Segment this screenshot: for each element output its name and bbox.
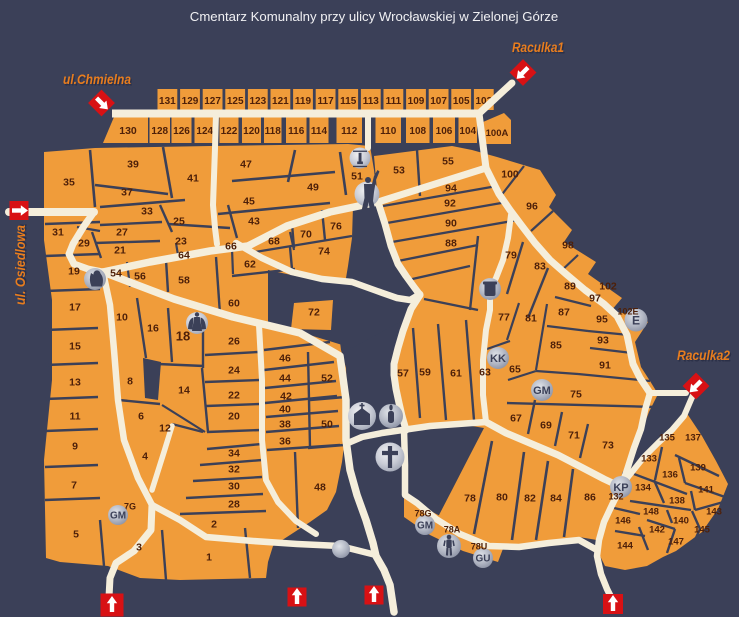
- svg-text:GM: GM: [417, 521, 433, 532]
- svg-text:38: 38: [279, 419, 291, 431]
- svg-text:106: 106: [436, 126, 453, 137]
- svg-text:1: 1: [206, 552, 212, 564]
- svg-text:130: 130: [119, 125, 137, 137]
- svg-text:136: 136: [662, 470, 678, 481]
- svg-text:58: 58: [178, 275, 190, 287]
- svg-text:GM: GM: [110, 511, 126, 522]
- svg-text:17: 17: [69, 302, 81, 314]
- svg-text:19: 19: [68, 266, 80, 278]
- svg-text:45: 45: [243, 196, 255, 208]
- svg-text:76: 76: [330, 221, 342, 233]
- svg-text:70: 70: [300, 229, 312, 241]
- svg-text:18: 18: [176, 329, 190, 344]
- svg-text:107: 107: [430, 96, 447, 107]
- svg-text:23: 23: [175, 236, 187, 248]
- svg-text:140: 140: [673, 516, 689, 527]
- svg-text:27: 27: [116, 227, 128, 239]
- svg-text:47: 47: [240, 159, 252, 171]
- svg-text:25: 25: [173, 216, 185, 228]
- svg-text:72: 72: [308, 307, 320, 319]
- svg-text:30: 30: [228, 481, 240, 493]
- svg-text:127: 127: [204, 96, 221, 107]
- svg-text:129: 129: [182, 96, 199, 107]
- svg-text:132: 132: [608, 492, 623, 502]
- svg-text:75: 75: [570, 389, 582, 401]
- svg-text:12: 12: [159, 423, 171, 435]
- svg-text:39: 39: [127, 159, 139, 171]
- svg-text:80: 80: [496, 492, 508, 504]
- svg-text:22: 22: [228, 390, 240, 402]
- svg-text:82: 82: [524, 493, 536, 505]
- svg-text:46: 46: [279, 353, 291, 365]
- svg-text:93: 93: [597, 335, 609, 347]
- svg-text:28: 28: [228, 499, 240, 511]
- svg-text:128: 128: [151, 126, 168, 137]
- svg-text:16: 16: [147, 323, 159, 335]
- svg-text:41: 41: [187, 173, 199, 185]
- svg-text:90: 90: [445, 218, 457, 230]
- svg-text:71: 71: [568, 430, 580, 442]
- svg-text:123: 123: [249, 96, 266, 107]
- svg-text:32: 32: [228, 464, 240, 476]
- svg-text:102E: 102E: [617, 307, 638, 317]
- svg-text:53: 53: [393, 165, 405, 177]
- svg-text:ul. Osiedlowa: ul. Osiedlowa: [13, 225, 28, 305]
- svg-text:143: 143: [706, 507, 722, 518]
- svg-text:8: 8: [127, 376, 133, 388]
- svg-text:Raculka2: Raculka2: [677, 348, 730, 363]
- svg-text:102: 102: [599, 281, 617, 293]
- svg-text:84: 84: [550, 493, 562, 505]
- svg-text:108: 108: [409, 126, 426, 137]
- svg-text:144: 144: [617, 541, 634, 552]
- svg-text:105: 105: [453, 96, 470, 107]
- svg-text:29: 29: [78, 238, 90, 250]
- svg-text:34: 34: [228, 448, 240, 460]
- svg-text:31: 31: [52, 227, 64, 239]
- svg-text:81: 81: [525, 313, 537, 325]
- svg-text:44: 44: [279, 373, 291, 385]
- svg-text:36: 36: [279, 436, 291, 448]
- svg-text:117: 117: [318, 96, 335, 107]
- svg-text:119: 119: [295, 96, 312, 107]
- svg-text:111: 111: [386, 96, 402, 107]
- svg-text:49: 49: [307, 182, 319, 194]
- svg-text:68: 68: [268, 236, 280, 248]
- svg-text:55: 55: [442, 156, 454, 168]
- svg-text:ul.Chmielna: ul.Chmielna: [63, 72, 131, 87]
- svg-text:97: 97: [589, 293, 601, 305]
- svg-text:60: 60: [228, 298, 240, 310]
- svg-text:33: 33: [141, 206, 153, 218]
- svg-text:Raculka1: Raculka1: [512, 40, 564, 55]
- svg-text:59: 59: [419, 367, 431, 379]
- svg-text:78A: 78A: [444, 525, 461, 535]
- svg-text:83: 83: [534, 261, 546, 273]
- svg-text:GM: GM: [533, 385, 551, 397]
- svg-text:57: 57: [397, 368, 409, 380]
- svg-text:52: 52: [321, 373, 333, 385]
- svg-text:10: 10: [116, 312, 128, 324]
- svg-text:91: 91: [599, 360, 611, 372]
- svg-text:78G: 78G: [414, 509, 431, 519]
- svg-text:125: 125: [227, 96, 244, 107]
- svg-text:50: 50: [321, 419, 333, 431]
- svg-text:141: 141: [698, 485, 715, 496]
- svg-text:GU: GU: [476, 554, 491, 565]
- svg-text:78: 78: [464, 493, 476, 505]
- svg-text:120: 120: [243, 126, 260, 137]
- svg-text:110: 110: [380, 126, 397, 137]
- svg-text:KK: KK: [490, 353, 506, 365]
- svg-text:35: 35: [63, 177, 75, 189]
- svg-text:113: 113: [363, 96, 380, 107]
- svg-text:24: 24: [228, 365, 240, 377]
- svg-text:96: 96: [526, 201, 538, 213]
- svg-text:63: 63: [479, 367, 491, 379]
- svg-text:85: 85: [550, 340, 562, 352]
- svg-text:126: 126: [173, 126, 190, 137]
- svg-text:147: 147: [668, 537, 684, 548]
- svg-text:148: 148: [643, 507, 659, 518]
- svg-text:15: 15: [69, 341, 81, 353]
- svg-text:48: 48: [314, 482, 326, 494]
- svg-text:139: 139: [690, 463, 706, 474]
- svg-text:65: 65: [509, 364, 521, 376]
- svg-text:134: 134: [635, 483, 652, 494]
- svg-text:87: 87: [558, 307, 570, 319]
- svg-text:98: 98: [562, 240, 574, 252]
- svg-text:79: 79: [505, 250, 517, 262]
- svg-text:86: 86: [584, 492, 596, 504]
- svg-text:11: 11: [69, 411, 80, 423]
- svg-text:116: 116: [288, 126, 305, 137]
- svg-text:2: 2: [211, 519, 217, 531]
- svg-text:131: 131: [159, 96, 176, 107]
- svg-text:51: 51: [351, 171, 363, 183]
- svg-text:112: 112: [341, 126, 358, 137]
- svg-text:9: 9: [72, 441, 78, 453]
- svg-text:135: 135: [659, 433, 676, 444]
- svg-text:145: 145: [694, 525, 711, 536]
- svg-text:89: 89: [564, 281, 576, 293]
- svg-text:7: 7: [71, 480, 77, 492]
- svg-text:115: 115: [340, 96, 357, 107]
- svg-text:69: 69: [540, 420, 552, 432]
- svg-text:109: 109: [408, 96, 425, 107]
- svg-text:3: 3: [136, 542, 142, 554]
- svg-text:122: 122: [221, 126, 238, 137]
- svg-text:56: 56: [134, 271, 146, 283]
- svg-text:21: 21: [114, 245, 126, 257]
- svg-text:64: 64: [178, 250, 190, 262]
- svg-text:5: 5: [73, 529, 79, 541]
- svg-text:67: 67: [510, 413, 522, 425]
- svg-text:138: 138: [669, 496, 685, 507]
- svg-text:95: 95: [596, 314, 608, 326]
- svg-text:100A: 100A: [486, 128, 509, 139]
- svg-text:78U: 78U: [471, 542, 488, 552]
- svg-text:74: 74: [318, 246, 330, 258]
- svg-text:137: 137: [685, 433, 701, 444]
- svg-text:118: 118: [265, 126, 282, 137]
- svg-text:146: 146: [615, 516, 631, 527]
- svg-text:43: 43: [248, 216, 260, 228]
- svg-text:66: 66: [225, 241, 237, 253]
- svg-text:94: 94: [445, 183, 457, 195]
- svg-text:133: 133: [641, 454, 657, 465]
- svg-text:104: 104: [459, 126, 476, 137]
- svg-text:4: 4: [142, 451, 148, 463]
- svg-text:62: 62: [244, 259, 256, 271]
- svg-text:88: 88: [445, 238, 457, 250]
- svg-text:6: 6: [138, 411, 144, 423]
- svg-text:26: 26: [228, 336, 240, 348]
- svg-text:77: 77: [498, 312, 510, 324]
- svg-text:13: 13: [69, 377, 81, 389]
- svg-text:61: 61: [450, 368, 462, 380]
- svg-text:92: 92: [444, 198, 456, 210]
- svg-text:42: 42: [280, 391, 292, 403]
- svg-text:142: 142: [649, 525, 665, 536]
- svg-text:14: 14: [178, 385, 190, 397]
- svg-text:37: 37: [121, 187, 133, 199]
- svg-text:54: 54: [110, 268, 122, 280]
- svg-text:100: 100: [501, 169, 519, 181]
- svg-text:121: 121: [272, 96, 289, 107]
- svg-text:40: 40: [279, 404, 291, 416]
- svg-text:124: 124: [196, 126, 213, 137]
- svg-text:114: 114: [311, 126, 328, 137]
- svg-text:Cmentarz Komunalny przy ulicy: Cmentarz Komunalny przy ulicy Wrocławski…: [190, 9, 558, 24]
- svg-text:20: 20: [228, 411, 240, 423]
- svg-text:73: 73: [602, 440, 614, 452]
